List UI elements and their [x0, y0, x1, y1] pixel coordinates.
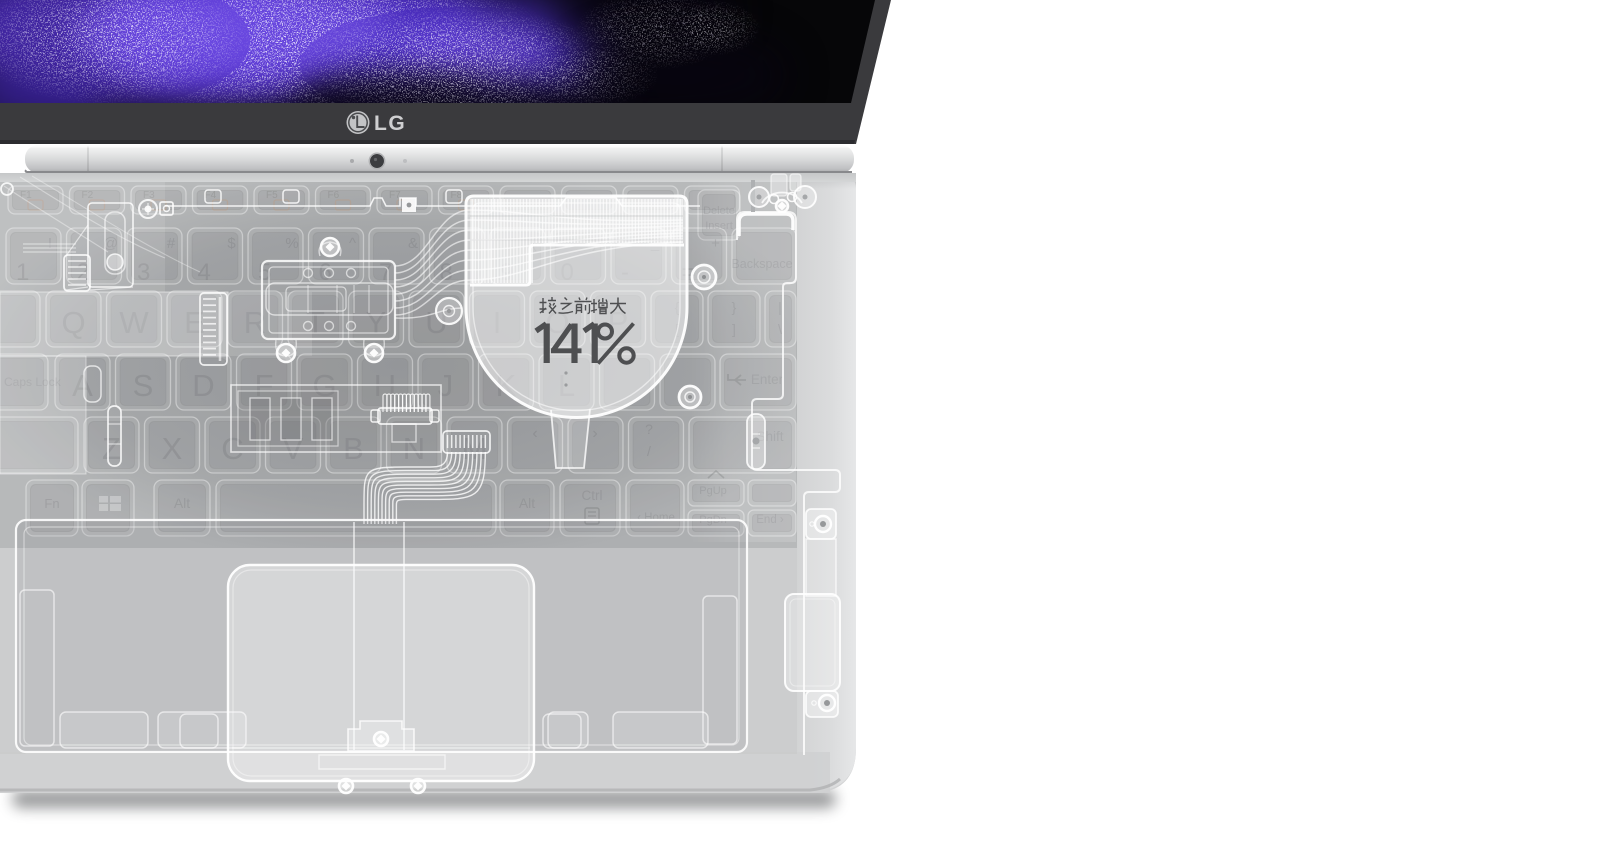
- svg-text:?: ?: [645, 421, 653, 437]
- svg-text:›: ›: [592, 425, 597, 442]
- svg-text:S: S: [133, 368, 154, 403]
- svg-text:M: M: [462, 431, 488, 466]
- svg-text:4: 4: [198, 259, 211, 286]
- svg-text:^: ^: [349, 235, 356, 252]
- svg-text:Z: Z: [102, 431, 121, 466]
- svg-text:/: /: [647, 443, 651, 459]
- svg-text:Alt: Alt: [174, 495, 190, 511]
- svg-text:$: $: [227, 235, 236, 252]
- svg-text:Fn: Fn: [44, 496, 59, 511]
- svg-text:D: D: [192, 368, 214, 403]
- svg-text:#: #: [167, 235, 176, 252]
- svg-text:Alt: Alt: [519, 495, 535, 511]
- svg-text:X: X: [162, 431, 183, 466]
- svg-text:Ctrl: Ctrl: [582, 488, 603, 503]
- svg-text:‹: ‹: [532, 425, 537, 442]
- svg-text:7: 7: [379, 259, 392, 286]
- svg-text:&: &: [408, 235, 418, 252]
- svg-text:LG: LG: [374, 112, 406, 135]
- svg-text:%: %: [285, 235, 298, 252]
